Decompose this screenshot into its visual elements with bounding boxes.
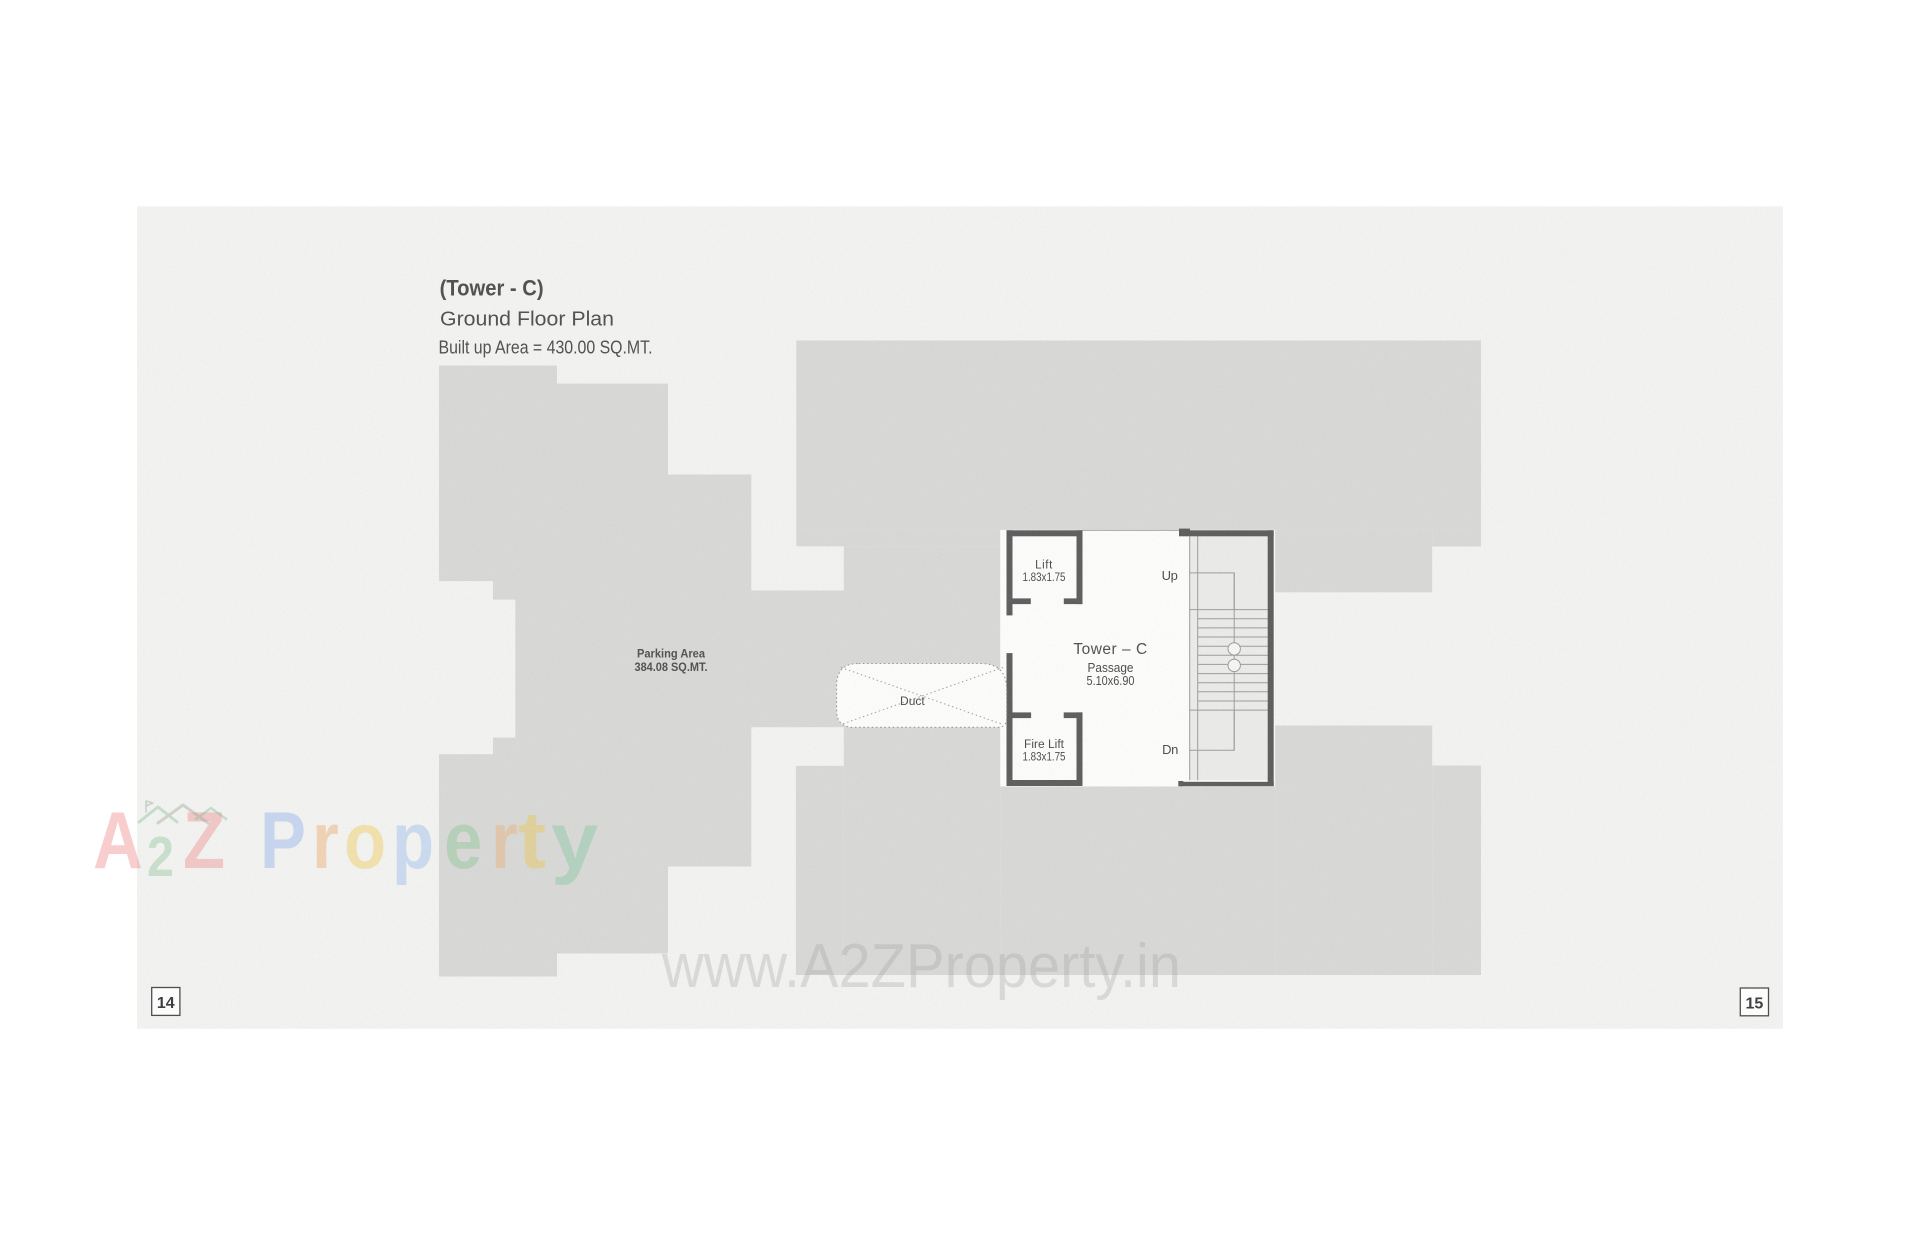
svg-text:A: A [93, 795, 143, 886]
